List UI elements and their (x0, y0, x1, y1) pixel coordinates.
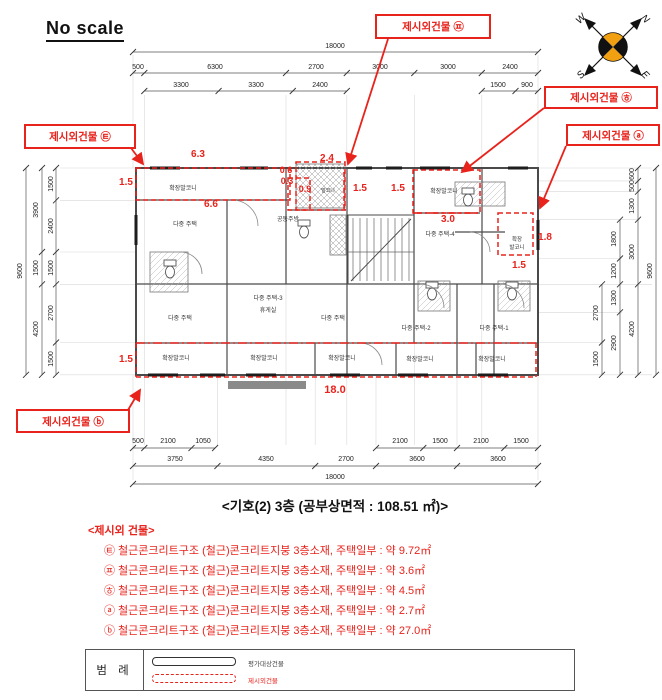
annex-list-item: ㉫ 철근콘크리트구조 (철근)콘크리트지붕 3층소재, 주택일부 : 약 9.7… (104, 541, 431, 561)
dim-label: 4200 (629, 321, 636, 337)
annex-dim-label: 1.5 (353, 183, 367, 194)
dim-label: 1500 (48, 176, 55, 192)
compass-e: E (639, 69, 652, 82)
annex-dim-label: 2.4 (320, 153, 334, 164)
annex-dim-label: 6.3 (191, 149, 205, 160)
dim-label: 3750 (167, 456, 183, 463)
room-label: 휴게실 (260, 306, 277, 314)
dim-label: 3300 (173, 82, 189, 89)
annex-dim-label: 18.0 (324, 384, 345, 396)
dim-label: 3300 (248, 82, 264, 89)
room-label: 확장발코니 (250, 354, 278, 362)
annex-dim-label: 1.5 (119, 177, 133, 188)
room-label: 다중 주택-3 (253, 294, 283, 302)
dim-label: 3600 (409, 456, 425, 463)
dim-label: 1050 (195, 438, 211, 445)
no-scale-label: No scale (46, 18, 124, 42)
dim-label: 1200 (611, 263, 618, 279)
annex-dim-label: 1.5 (512, 260, 526, 271)
dim-label: 9600 (647, 263, 654, 279)
room-label: 발코니 (321, 187, 335, 194)
dim-label: 9600 (17, 263, 24, 279)
annex-dim-label: 0.9 (299, 184, 312, 194)
dim-label: 3000 (440, 64, 456, 71)
dim-label: 900 (521, 82, 533, 89)
compass-n: N (638, 13, 651, 26)
callout-annex-b: 제시외건물 ⓑ (16, 409, 130, 433)
annex-list-item: ⓐ 철근콘크리트구조 (철근)콘크리트지붕 3층소재, 주택일부 : 약 2.7… (104, 601, 431, 621)
compass-rose: W N S E (574, 11, 652, 82)
legend-swatch-subject-building (152, 657, 236, 666)
dim-label: 2100 (473, 438, 489, 445)
dim-label: 500 (629, 180, 636, 192)
dim-label: 6300 (207, 64, 223, 71)
legend-label-subject-building: 평가대상건물 (248, 658, 284, 668)
legend-label-annex-building: 제시외건물 (248, 675, 278, 685)
annex-list-item: ⓑ 철근콘크리트구조 (철근)콘크리트지붕 3층소재, 주택일부 : 약 27.… (104, 621, 431, 641)
dim-label: 500 (132, 438, 144, 445)
annex-dim-label: 1.5 (119, 354, 133, 365)
room-label: 확장발코니 (328, 354, 356, 362)
room-label: 다중 주택 (173, 220, 197, 228)
annex-building-list: <제시외 건물> ㉫ 철근콘크리트구조 (철근)콘크리트지붕 3층소재, 주택일… (88, 522, 431, 641)
dim-label: 18000 (325, 43, 345, 50)
dim-label: 1500 (33, 260, 40, 276)
room-label: 다중 주택-4 (425, 230, 455, 238)
dim-label: 2400 (502, 64, 518, 71)
dim-label: 1500 (48, 351, 55, 367)
room-label: 확장발코니 (430, 187, 458, 195)
legend-swatch-annex-building (152, 674, 236, 683)
drawing-title: <기호(2) 3층 (공부상면적 : 108.51 ㎡)> (70, 495, 600, 515)
room-label: 확장발코니 (478, 355, 506, 363)
dim-label: 1500 (513, 438, 529, 445)
dim-label: 4350 (258, 456, 274, 463)
dim-label: 1500 (593, 351, 600, 367)
annex-list-item: ㉭ 철근콘크리트구조 (철근)콘크리트지붕 3층소재, 주택일부 : 약 4.5… (104, 581, 431, 601)
dim-label: 2700 (308, 64, 324, 71)
annex-dim-label: 3.0 (441, 214, 455, 225)
annex-dim-label: 1.8 (538, 232, 552, 243)
callout-annex-a: 제시외건물 ⓐ (566, 124, 660, 146)
dim-label: 2700 (593, 305, 600, 321)
callout-annex-h: 제시외건물 ㉭ (544, 86, 658, 109)
annex-list-header: <제시외 건물> (88, 522, 431, 538)
dim-label: 1500 (432, 438, 448, 445)
dim-label: 2400 (48, 218, 55, 234)
room-label: 다중 주택 (321, 314, 345, 322)
room-label: 다중 주택 (168, 314, 192, 322)
room-label: 확장발코니 (169, 184, 197, 192)
compass-s: S (575, 69, 588, 82)
dim-label: 500 (132, 64, 144, 71)
room-label: 확장 (512, 235, 522, 243)
dim-label: 1500 (490, 82, 506, 89)
annex-dim-label: 1.5 (391, 183, 405, 194)
room-label: 공동주방 (277, 215, 300, 223)
legend-box: 범 례 평가대상건물 제시외건물 (85, 649, 575, 691)
annex-dim-label: 6.6 (204, 199, 218, 210)
room-label: 확장발코니 (406, 355, 434, 363)
dim-label: 2700 (338, 456, 354, 463)
dim-label: 3000 (629, 244, 636, 260)
dim-label: 1500 (48, 260, 55, 276)
room-label: 확장발코니 (162, 354, 190, 362)
dim-label: 2100 (392, 438, 408, 445)
room-label: 발코니 (509, 243, 524, 251)
dim-label: 600 (629, 168, 636, 180)
annex-dim-label: 0.3 (281, 176, 294, 186)
dim-label: 3600 (490, 456, 506, 463)
dim-label: 2900 (611, 335, 618, 351)
dim-label: 18000 (325, 474, 345, 481)
dim-label: 1300 (629, 198, 636, 214)
dim-label: 1300 (611, 290, 618, 306)
callout-annex-k: 제시외건물 ㉫ (24, 124, 136, 149)
dim-label: 2700 (48, 305, 55, 321)
annex-list-item: ㉬ 철근콘크리트구조 (철근)콘크리트지붕 3층소재, 주택일부 : 약 3.6… (104, 561, 431, 581)
dim-label: 2100 (160, 438, 176, 445)
dim-label: 2400 (312, 82, 328, 89)
dim-label: 3900 (33, 202, 40, 218)
room-label: 다중 주택-2 (401, 324, 431, 332)
dim-label: 1800 (611, 231, 618, 247)
annex-dim-label: 0.6 (280, 165, 293, 175)
callout-annex-m: 제시외건물 ㉬ (375, 14, 491, 39)
dim-label: 4200 (33, 321, 40, 337)
appraisal-floorplan-page: 1800050063002700300030002400330033002400… (0, 0, 662, 700)
room-label: 다중 주택-1 (479, 324, 509, 332)
legend-title: 범 례 (86, 650, 144, 690)
